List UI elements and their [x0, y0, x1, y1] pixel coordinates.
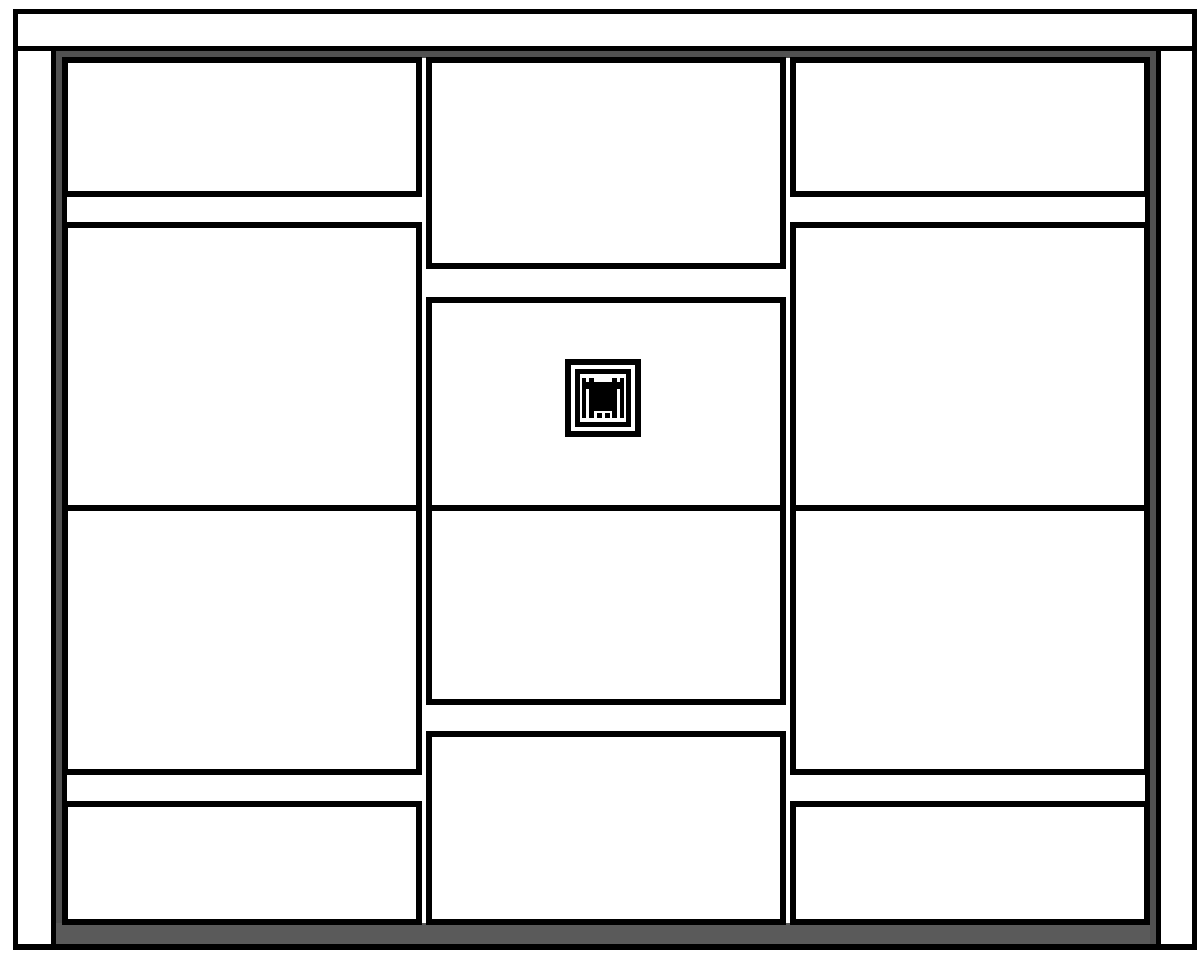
carcass-left-edge-gap-top: [62, 197, 67, 222]
front-middle-top-door[interactable]: [426, 57, 786, 269]
front-right-lower-door[interactable]: [790, 505, 1150, 775]
front-left-bottom-drawer[interactable]: [62, 801, 422, 925]
left-side-panel: [13, 46, 56, 950]
front-right-top-drawer[interactable]: [790, 57, 1150, 197]
right-side-panel: [1156, 46, 1197, 950]
front-middle-lower-door[interactable]: [426, 505, 786, 705]
front-left-upper-door[interactable]: [62, 222, 422, 511]
carcass-right-edge-gap-top: [1145, 197, 1150, 222]
front-left-top-drawer[interactable]: [62, 57, 422, 197]
plinth: [56, 923, 1150, 945]
front-right-upper-door[interactable]: [790, 222, 1150, 511]
front-right-bottom-drawer[interactable]: [790, 801, 1150, 925]
front-left-lower-door[interactable]: [62, 505, 422, 775]
bottom-edge-line: [13, 944, 1197, 950]
door-emblem-icon[interactable]: [565, 359, 641, 437]
carcass-right-edge-gap-bottom: [1145, 775, 1150, 801]
carcass-left-edge-gap-bottom: [62, 775, 67, 801]
top-cornice-panel: [13, 9, 1197, 51]
elevation-drawing: [0, 0, 1203, 960]
front-middle-bottom-door[interactable]: [426, 731, 786, 925]
